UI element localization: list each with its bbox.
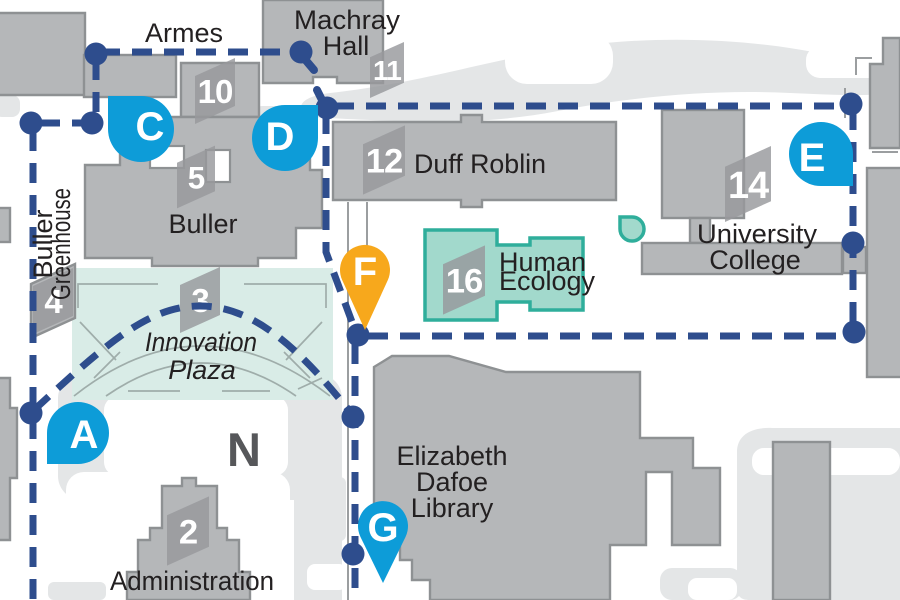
road-gap	[505, 34, 613, 84]
building-west-edge	[0, 378, 17, 540]
campus-map: 10 11 5 4 3 2 12 14 16	[0, 0, 900, 600]
marker-a-letter: A	[70, 413, 99, 457]
label-machray-line2: Hall	[323, 31, 370, 61]
marker-d[interactable]: D	[252, 105, 318, 171]
building-west-small	[0, 208, 10, 242]
route-dot	[842, 232, 865, 255]
route-dot	[840, 93, 863, 116]
label-plaza-line2: Plaza	[168, 355, 236, 385]
badge-number: 14	[728, 165, 769, 207]
route-dot	[81, 112, 104, 135]
label-university-line2: College	[709, 245, 801, 275]
marker-a[interactable]: A	[47, 402, 109, 464]
route-dot	[342, 543, 365, 566]
road-patch	[0, 95, 20, 117]
water-drop-icon	[620, 217, 644, 241]
road-patch	[48, 582, 106, 600]
route-dot	[342, 406, 365, 429]
label-administration: Administration	[110, 566, 274, 596]
badge-number: 12	[366, 143, 402, 181]
building-southeast	[773, 442, 830, 600]
marker-g[interactable]: G	[358, 501, 408, 583]
badge-number: 11	[373, 55, 401, 86]
marker-e[interactable]: E	[789, 122, 853, 186]
marker-g-letter: G	[367, 506, 398, 550]
marker-e-letter: E	[799, 136, 826, 180]
badge-number: 2	[179, 514, 197, 552]
badge-number: 16	[446, 263, 482, 301]
road-gap	[688, 578, 737, 600]
marker-c-letter: C	[136, 105, 165, 149]
badge-number: 10	[198, 73, 233, 110]
marker-d-letter: D	[266, 115, 295, 159]
marker-f-letter: F	[353, 250, 377, 294]
route-dot	[843, 321, 866, 344]
road-patch	[325, 477, 346, 541]
route-dot	[20, 402, 43, 425]
label-human-line2: Ecology	[499, 266, 596, 296]
label-dafoe-line3: Library	[411, 493, 494, 523]
label-plaza-line1: Innovation	[145, 327, 257, 357]
marker-c[interactable]: C	[108, 96, 174, 162]
route-dot	[85, 43, 108, 66]
building-hatched	[867, 168, 900, 377]
route-dot	[20, 112, 43, 135]
building-northwest	[0, 13, 85, 95]
north-indicator: N	[227, 423, 261, 476]
label-duff-roblin: Duff Roblin	[414, 149, 546, 179]
route-dot	[290, 41, 313, 64]
label-buller: Buller	[168, 209, 237, 239]
badge-number: 3	[191, 282, 209, 319]
road-gap	[307, 564, 347, 590]
route-dot	[316, 97, 339, 120]
badge-number: 5	[188, 160, 205, 195]
label-greenhouse-line2: Greenhouse	[46, 188, 76, 300]
label-armes: Armes	[145, 18, 223, 48]
